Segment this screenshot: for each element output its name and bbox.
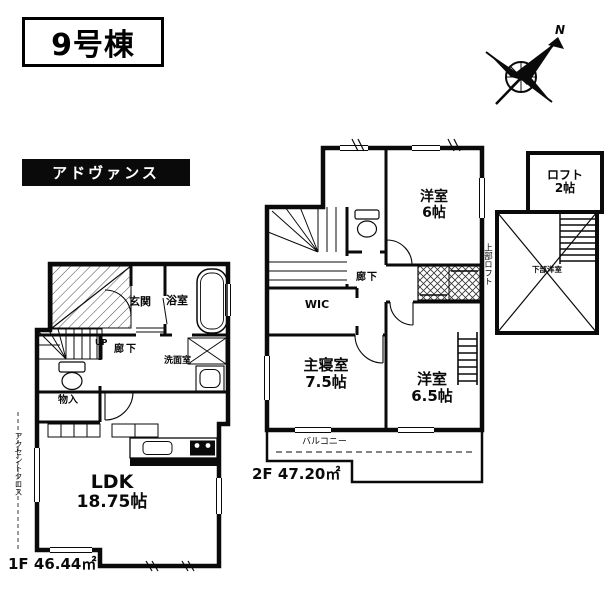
loft-note: 下部洋室 [517, 266, 577, 274]
room-label-western6: 洋室 6帖 [388, 186, 480, 226]
compass-rose-icon [486, 37, 564, 104]
building-title: 9号棟 [51, 20, 135, 64]
room-label-master-bedroom: 主寝室 7.5帖 [281, 352, 371, 396]
room-label-ldk: LDK 18.75帖 [62, 470, 162, 514]
building-title-box: 9号棟 [22, 17, 164, 67]
western6-size: 6帖 [422, 206, 446, 222]
room-label-storage: 物入 [58, 395, 78, 406]
kitchen-counter [130, 438, 217, 466]
western65-size: 6.5帖 [411, 388, 453, 405]
door-arc [390, 302, 413, 325]
room-label-entrance: 玄関 [129, 296, 151, 308]
toilet-icon [59, 362, 85, 390]
floorplan-page: 9号棟 アドヴァンス N 玄関 浴室 UP 廊下 洗面室 物入 LDK 18.7… [0, 0, 606, 596]
room-label-washroom: 洗面室 [164, 356, 191, 366]
hall-door-arc [105, 392, 133, 420]
washer-icon [196, 366, 224, 391]
brand-label-box: アドヴァンス [22, 159, 190, 186]
bathtub-icon [197, 269, 227, 333]
door-arc [387, 240, 412, 265]
vanity-icon [188, 338, 226, 364]
room-label-hallway-1f: 廊下 [114, 344, 138, 355]
brand-label: アドヴァンス [52, 162, 160, 183]
compass-north-label: N [555, 24, 565, 37]
ldk-size: 18.75帖 [77, 493, 148, 512]
room-label-hallway-2f: 廊下 [356, 272, 378, 283]
floor1-area-label: 1F 46.44㎡ [8, 556, 96, 573]
floor1-plan [18, 264, 233, 571]
floor2-side-note: 上部ロフト [482, 243, 492, 305]
room-label-wic: WIC [292, 299, 342, 311]
master-name: 主寝室 [303, 357, 348, 374]
floor1-side-note: アクセントクロス [13, 432, 22, 548]
entrance-step-lines [136, 328, 164, 332]
floor2-area-label: 2F 47.20㎡ [252, 466, 340, 483]
toilet-icon [355, 210, 379, 237]
stairs-up-label: UP [95, 339, 107, 348]
stairs-down-icon [267, 207, 347, 280]
balcony-label: バルコニー [302, 437, 347, 447]
room-label-bathroom: 浴室 [166, 295, 188, 307]
ldk-name: LDK [91, 472, 134, 493]
closet-icon [418, 266, 480, 300]
room-label-western65: 洋室 6.5帖 [392, 366, 472, 410]
western65-name: 洋室 [417, 371, 447, 388]
stove-icon [190, 441, 215, 456]
loft-size: 2帖 [555, 182, 575, 195]
master-size: 7.5帖 [305, 374, 347, 391]
western6-name: 洋室 [420, 190, 448, 206]
loft-name: ロフト [547, 169, 583, 182]
room-label-loft: ロフト 2帖 [528, 164, 602, 200]
cabinet-icons [48, 424, 158, 437]
